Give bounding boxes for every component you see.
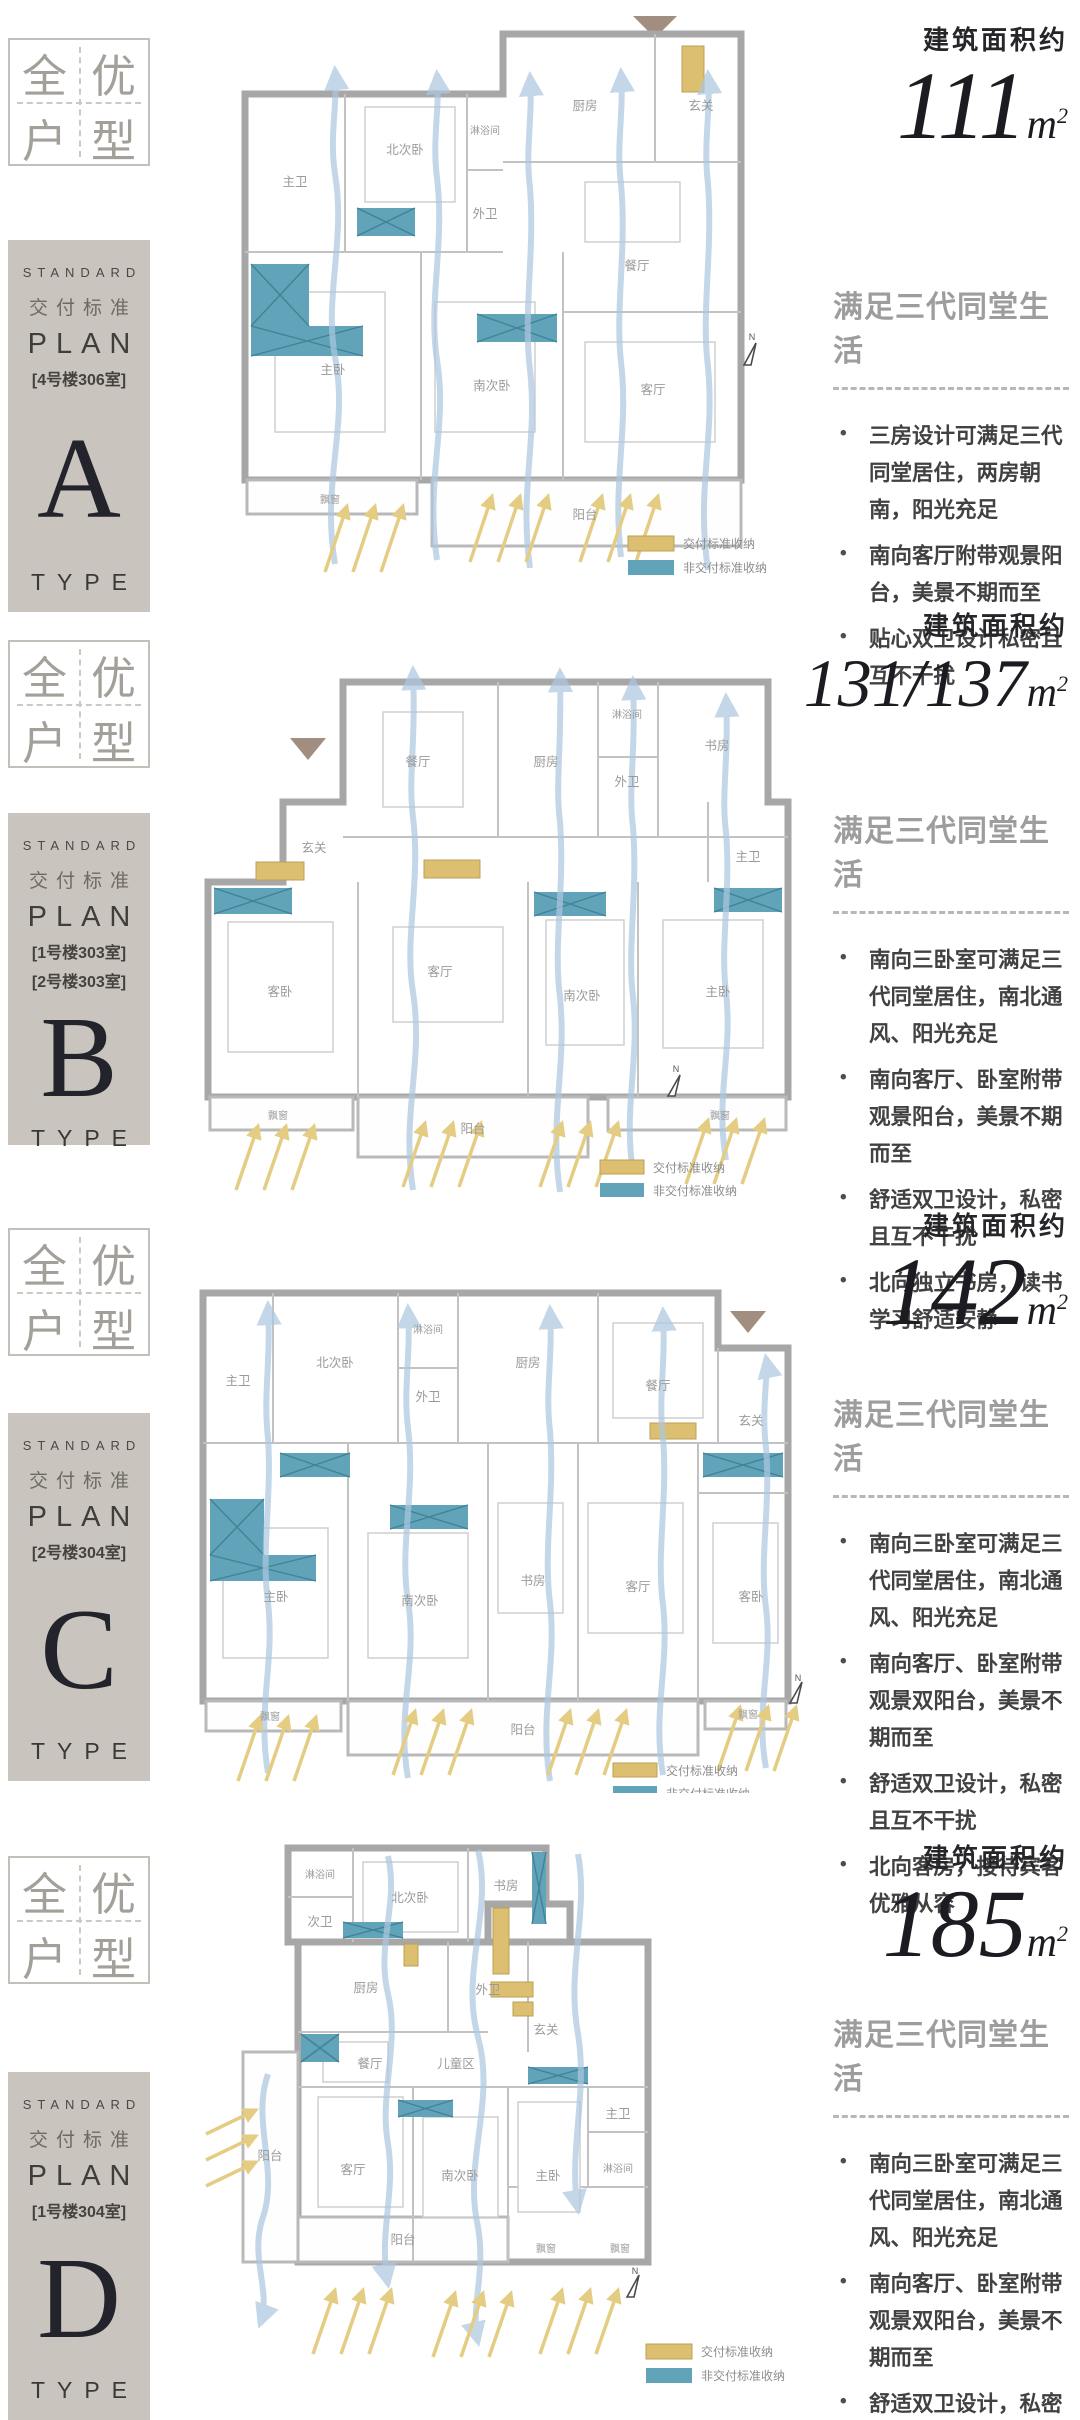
badge-char: 优 [91, 1230, 136, 1295]
area-block: 建筑面积约 111m2 [897, 20, 1068, 155]
svg-text:厨房: 厨房 [533, 754, 558, 769]
entrance-arrow-icon [290, 738, 326, 760]
quality-badge: 全 优 户 型 [8, 1228, 150, 1356]
unit-number: [1号楼303室] [32, 939, 126, 963]
svg-text:N: N [795, 1673, 802, 1683]
dashed-divider [833, 1495, 1069, 1498]
svg-text:N: N [632, 2266, 639, 2276]
svg-text:厨房: 厨房 [515, 1355, 540, 1370]
floorplan-b: 餐厅 厨房 淋浴间 外卫 书房 玄关 客卧 客厅 南次卧 主卧 主卫 阳台 飘窗… [168, 652, 793, 1197]
svg-text:主卫: 主卫 [225, 1374, 250, 1388]
svg-text:玄关: 玄关 [738, 1413, 763, 1428]
badge-char: 全 [22, 1230, 67, 1295]
unit-number: [2号楼304室] [32, 1539, 126, 1563]
delivery-label: 交付标准 [21, 2125, 137, 2152]
selling-point: 南向三卧室可满足三代同堂居住，南北通风、阳光充足 [833, 1526, 1068, 1637]
svg-text:主卧: 主卧 [535, 2169, 560, 2183]
description-title: 满足三代同堂生活 [833, 1390, 1068, 1478]
svg-text:飘窗: 飘窗 [738, 1708, 758, 1721]
selling-point: 舒适双卫设计，私密且互不干扰 [833, 2386, 1068, 2420]
floorplan-c: 主卫 北次卧 淋浴间 外卫 厨房 餐厅 玄关 主卧 南次卧 书房 客厅 客卧 阳… [158, 1253, 813, 1793]
svg-text:交付标准收纳: 交付标准收纳 [683, 536, 755, 551]
svg-text:客厅: 客厅 [340, 2162, 365, 2177]
unit-number: [2号楼303室] [32, 968, 126, 992]
svg-text:非交付标准收纳: 非交付标准收纳 [666, 1786, 750, 1793]
svg-text:飘窗: 飘窗 [710, 1109, 730, 1122]
svg-text:阳台: 阳台 [257, 2148, 282, 2163]
description-title: 满足三代同堂生活 [833, 806, 1068, 894]
type-letter: B [40, 992, 117, 1125]
svg-text:外卫: 外卫 [472, 207, 497, 221]
badge-char: 户 [22, 1923, 67, 1988]
badge-char: 型 [91, 105, 136, 170]
delivery-label: 交付标准 [21, 866, 137, 893]
floorplan-a: 主卫 北次卧 淋浴间 外卫 厨房 玄关 餐厅 主卧 南次卧 客厅 阳台 飘窗 N… [185, 12, 770, 587]
plan-label: PLAN [19, 328, 140, 361]
svg-text:主卧: 主卧 [263, 1590, 288, 1604]
plan-header-c: STANDARD 交付标准 PLAN [2号楼304室] C TYPE [8, 1413, 150, 1781]
svg-text:非交付标准收纳: 非交付标准收纳 [701, 2368, 785, 2383]
selling-point: 南向客厅、卧室附带观景双阳台，美景不期而至 [833, 1646, 1068, 1757]
svg-text:餐厅: 餐厅 [357, 2056, 382, 2071]
dashed-divider [833, 387, 1069, 390]
svg-text:餐厅: 餐厅 [645, 1378, 670, 1393]
plan-label: PLAN [19, 2160, 140, 2193]
area-block: 建筑面积约 185m2 [883, 1838, 1068, 1973]
unit-number: [1号楼304室] [32, 2198, 126, 2222]
description-block: 满足三代同堂生活 南向三卧室可满足三代同堂居住，南北通风、阳光充足 南向客厅、卧… [833, 2010, 1068, 2420]
flyer-canvas: 全 优 户 型 STANDARD 交付标准 PLAN [4号楼306室] A T… [0, 0, 1080, 2420]
svg-text:阳台: 阳台 [572, 507, 597, 522]
badge-char: 优 [91, 642, 136, 707]
selling-point: 南向三卧室可满足三代同堂居住，南北通风、阳光充足 [833, 942, 1068, 1053]
svg-text:北次卧: 北次卧 [386, 143, 424, 157]
svg-text:飘窗: 飘窗 [536, 2242, 556, 2255]
type-label: TYPE [19, 1125, 139, 1152]
selling-point: 三房设计可满足三代同堂居住，两房朝南，阳光充足 [833, 418, 1068, 529]
svg-text:主卫: 主卫 [282, 175, 307, 189]
svg-text:玄关: 玄关 [688, 98, 713, 113]
badge-divider [17, 1292, 141, 1294]
badge-char: 户 [22, 105, 67, 170]
legend: 交付标准收纳 非交付标准收纳 [646, 2344, 785, 2383]
badge-char: 全 [22, 642, 67, 707]
bay-window-outline [608, 1097, 786, 1130]
north-arrow-icon: N [790, 1673, 802, 1703]
badge-char: 全 [22, 40, 67, 105]
svg-text:玄关: 玄关 [533, 2022, 558, 2037]
description-title: 满足三代同堂生活 [833, 282, 1068, 370]
svg-text:主卧: 主卧 [705, 985, 730, 999]
svg-text:阳台: 阳台 [390, 2232, 415, 2247]
standard-label: STANDARD [17, 1438, 142, 1453]
delivery-label: 交付标准 [21, 1466, 137, 1493]
svg-text:淋浴间: 淋浴间 [413, 1323, 443, 1336]
standard-label: STANDARD [17, 838, 142, 853]
entrance-arrow-icon [730, 1311, 766, 1333]
svg-text:玄关: 玄关 [301, 840, 326, 855]
svg-text:南次卧: 南次卧 [473, 378, 511, 393]
floorplan-d: 淋浴间 次卫 北次卧 书房 厨房 外卫 玄关 餐厅 儿童区 客厅 南次卧 主卧 … [148, 1842, 813, 2402]
area-block: 建筑面积约 142m2 [883, 1206, 1068, 1341]
badge-divider [17, 1920, 141, 1922]
north-arrow-icon: N [627, 2266, 639, 2297]
svg-text:客卧: 客卧 [267, 984, 292, 999]
svg-text:淋浴间: 淋浴间 [603, 2162, 633, 2175]
area-value: 142m2 [883, 1243, 1068, 1341]
svg-text:书房: 书房 [520, 1573, 545, 1588]
dashed-divider [833, 2115, 1069, 2118]
standard-label: STANDARD [17, 265, 142, 280]
selling-point: 南向客厅、卧室附带观景双阳台，美景不期而至 [833, 2266, 1068, 2377]
svg-text:南次卧: 南次卧 [401, 1593, 439, 1608]
area-value: 185m2 [883, 1875, 1068, 1973]
badge-char: 型 [91, 1923, 136, 1988]
plan-label: PLAN [19, 901, 140, 934]
svg-text:儿童区: 儿童区 [437, 2056, 475, 2071]
svg-text:N: N [749, 332, 756, 342]
svg-text:次卫: 次卫 [307, 1915, 332, 1929]
standard-label: STANDARD [17, 2097, 142, 2112]
plan-header-d: STANDARD 交付标准 PLAN [1号楼304室] D TYPE [8, 2072, 150, 2420]
area-value: 131/137m2 [804, 643, 1068, 725]
svg-text:外卫: 外卫 [475, 1983, 500, 1997]
plan-label: PLAN [19, 1501, 140, 1534]
quality-badge: 全 优 户 型 [8, 38, 150, 166]
north-arrow-icon: N [744, 332, 756, 365]
storage-standard [650, 1423, 696, 1439]
svg-text:北次卧: 北次卧 [391, 1891, 429, 1905]
svg-text:N: N [673, 1064, 680, 1074]
svg-text:淋浴间: 淋浴间 [470, 124, 500, 137]
badge-char: 优 [91, 1858, 136, 1923]
svg-text:非交付标准收纳: 非交付标准收纳 [683, 560, 767, 575]
svg-text:外卫: 外卫 [415, 1390, 440, 1404]
svg-text:交付标准收纳: 交付标准收纳 [653, 1160, 725, 1175]
svg-text:厨房: 厨房 [353, 1980, 378, 1995]
svg-text:飘窗: 飘窗 [610, 2242, 630, 2255]
selling-point: 南向客厅、卧室附带观景阳台，美景不期而至 [833, 1062, 1068, 1173]
quality-badge: 全 优 户 型 [8, 1856, 150, 1984]
delivery-label: 交付标准 [21, 293, 137, 320]
plan-header-a: STANDARD 交付标准 PLAN [4号楼306室] A TYPE [8, 240, 150, 612]
svg-text:飘窗: 飘窗 [268, 1109, 288, 1122]
svg-text:客厅: 客厅 [625, 1579, 650, 1594]
badge-char: 户 [22, 707, 67, 772]
legend: 交付标准收纳 非交付标准收纳 [613, 1763, 750, 1793]
svg-text:主卫: 主卫 [605, 2107, 630, 2121]
badge-char: 户 [22, 1295, 67, 1360]
svg-text:交付标准收纳: 交付标准收纳 [701, 2344, 773, 2359]
badge-divider [17, 102, 141, 104]
svg-text:厨房: 厨房 [572, 98, 597, 113]
description-title: 满足三代同堂生活 [833, 2010, 1068, 2098]
unit-number: [4号楼306室] [32, 366, 126, 390]
type-letter: C [40, 1563, 117, 1738]
storage-standard [682, 46, 704, 92]
badge-char: 全 [22, 1858, 67, 1923]
svg-text:北次卧: 北次卧 [316, 1356, 354, 1370]
svg-text:餐厅: 餐厅 [405, 754, 430, 769]
svg-text:南次卧: 南次卧 [563, 988, 601, 1003]
area-block: 建筑面积约 131/137m2 [804, 606, 1068, 725]
svg-text:交付标准收纳: 交付标准收纳 [666, 1763, 738, 1778]
svg-text:飘窗: 飘窗 [260, 1710, 280, 1723]
type-label: TYPE [19, 1738, 139, 1765]
svg-text:客卧: 客卧 [738, 1589, 763, 1604]
svg-text:南次卧: 南次卧 [441, 2168, 479, 2183]
svg-text:客厅: 客厅 [427, 964, 452, 979]
plan-header-b: STANDARD 交付标准 PLAN [1号楼303室] [2号楼303室] B… [8, 813, 150, 1145]
dashed-divider [833, 911, 1069, 914]
badge-char: 优 [91, 40, 136, 105]
svg-text:外卫: 外卫 [614, 775, 639, 789]
svg-text:书房: 书房 [493, 1878, 518, 1893]
type-letter: D [37, 2222, 121, 2377]
svg-text:客厅: 客厅 [640, 382, 665, 397]
type-label: TYPE [19, 2377, 139, 2404]
badge-char: 型 [91, 1295, 136, 1360]
selling-point: 舒适双卫设计，私密且互不干扰 [833, 1766, 1068, 1840]
svg-text:主卫: 主卫 [735, 850, 760, 864]
svg-text:淋浴间: 淋浴间 [612, 708, 642, 721]
quality-badge: 全 优 户 型 [8, 640, 150, 768]
svg-text:飘窗: 飘窗 [320, 493, 340, 506]
svg-text:非交付标准收纳: 非交付标准收纳 [653, 1183, 737, 1197]
selling-point: 南向客厅附带观景阳台，美景不期而至 [833, 538, 1068, 612]
selling-points: 南向三卧室可满足三代同堂居住，南北通风、阳光充足 南向客厅、卧室附带观景双阳台，… [833, 2146, 1068, 2420]
svg-text:阳台: 阳台 [510, 1722, 535, 1737]
badge-divider [17, 704, 141, 706]
svg-text:主卧: 主卧 [320, 363, 345, 377]
svg-text:餐厅: 餐厅 [624, 258, 649, 273]
type-label: TYPE [19, 569, 139, 596]
type-letter: A [37, 390, 121, 569]
selling-point: 南向三卧室可满足三代同堂居住，南北通风、阳光充足 [833, 2146, 1068, 2257]
badge-char: 型 [91, 707, 136, 772]
area-label: 建筑面积约 [804, 606, 1068, 643]
area-value: 111m2 [897, 57, 1068, 155]
svg-text:淋浴间: 淋浴间 [305, 1868, 335, 1881]
svg-text:书房: 书房 [704, 738, 729, 753]
legend: 交付标准收纳 非交付标准收纳 [628, 536, 767, 575]
svg-text:阳台: 阳台 [460, 1121, 485, 1136]
